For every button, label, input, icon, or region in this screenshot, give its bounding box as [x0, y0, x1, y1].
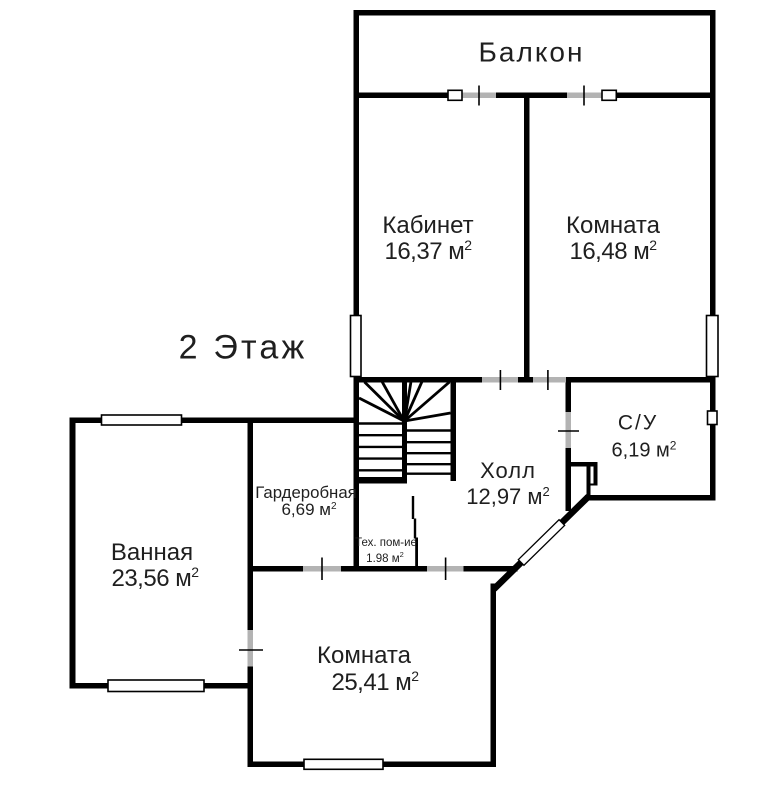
svg-text:16,48 м2: 16,48 м2: [569, 237, 657, 265]
svg-text:6,19 м2: 6,19 м2: [612, 439, 677, 462]
svg-text:Тех. пом-ие: Тех. пом-ие: [355, 537, 417, 549]
svg-text:16,37 м2: 16,37 м2: [384, 237, 472, 265]
svg-text:Комната: Комната: [566, 212, 661, 239]
svg-text:1.98 м2: 1.98 м2: [366, 550, 404, 565]
svg-text:Ванная: Ванная: [111, 539, 193, 566]
svg-text:2 Этаж: 2 Этаж: [179, 329, 308, 367]
svg-text:Комната: Комната: [317, 642, 412, 669]
svg-text:Балкон: Балкон: [479, 37, 585, 68]
svg-text:25,41 м2: 25,41 м2: [331, 668, 419, 696]
svg-text:6,69 м2: 6,69 м2: [281, 500, 337, 519]
svg-text:Холл: Холл: [480, 458, 536, 483]
svg-text:С/У: С/У: [618, 412, 658, 435]
svg-text:23,56 м2: 23,56 м2: [111, 564, 199, 592]
svg-text:12,97 м2: 12,97 м2: [466, 484, 550, 509]
svg-text:Кабинет: Кабинет: [382, 212, 473, 239]
